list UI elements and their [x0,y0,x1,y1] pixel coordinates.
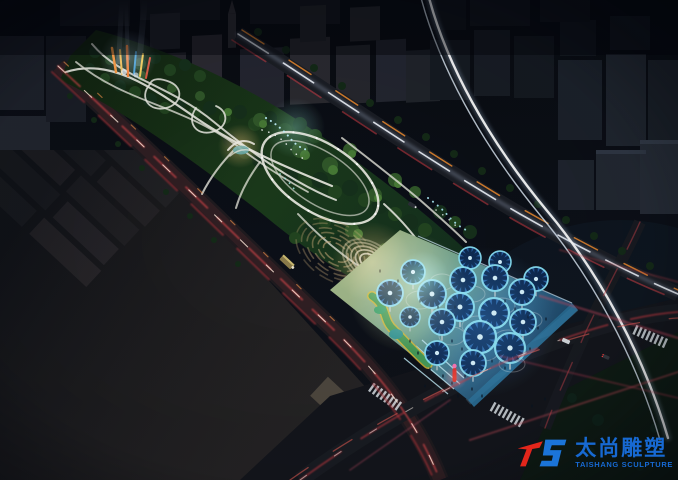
watermark-logo: 太尚雕塑 TAISHANG SCULPTURE [516,435,673,471]
rendering-screenshot: 太尚雕塑 TAISHANG SCULPTURE [0,0,678,480]
rendering-canvas [0,0,678,480]
brand-name-cn: 太尚雕塑 [575,438,673,459]
ts-logo-icon [516,435,568,471]
vignette [0,0,678,480]
top-darkening [0,0,678,55]
brand-name-en: TAISHANG SCULPTURE [575,461,673,469]
